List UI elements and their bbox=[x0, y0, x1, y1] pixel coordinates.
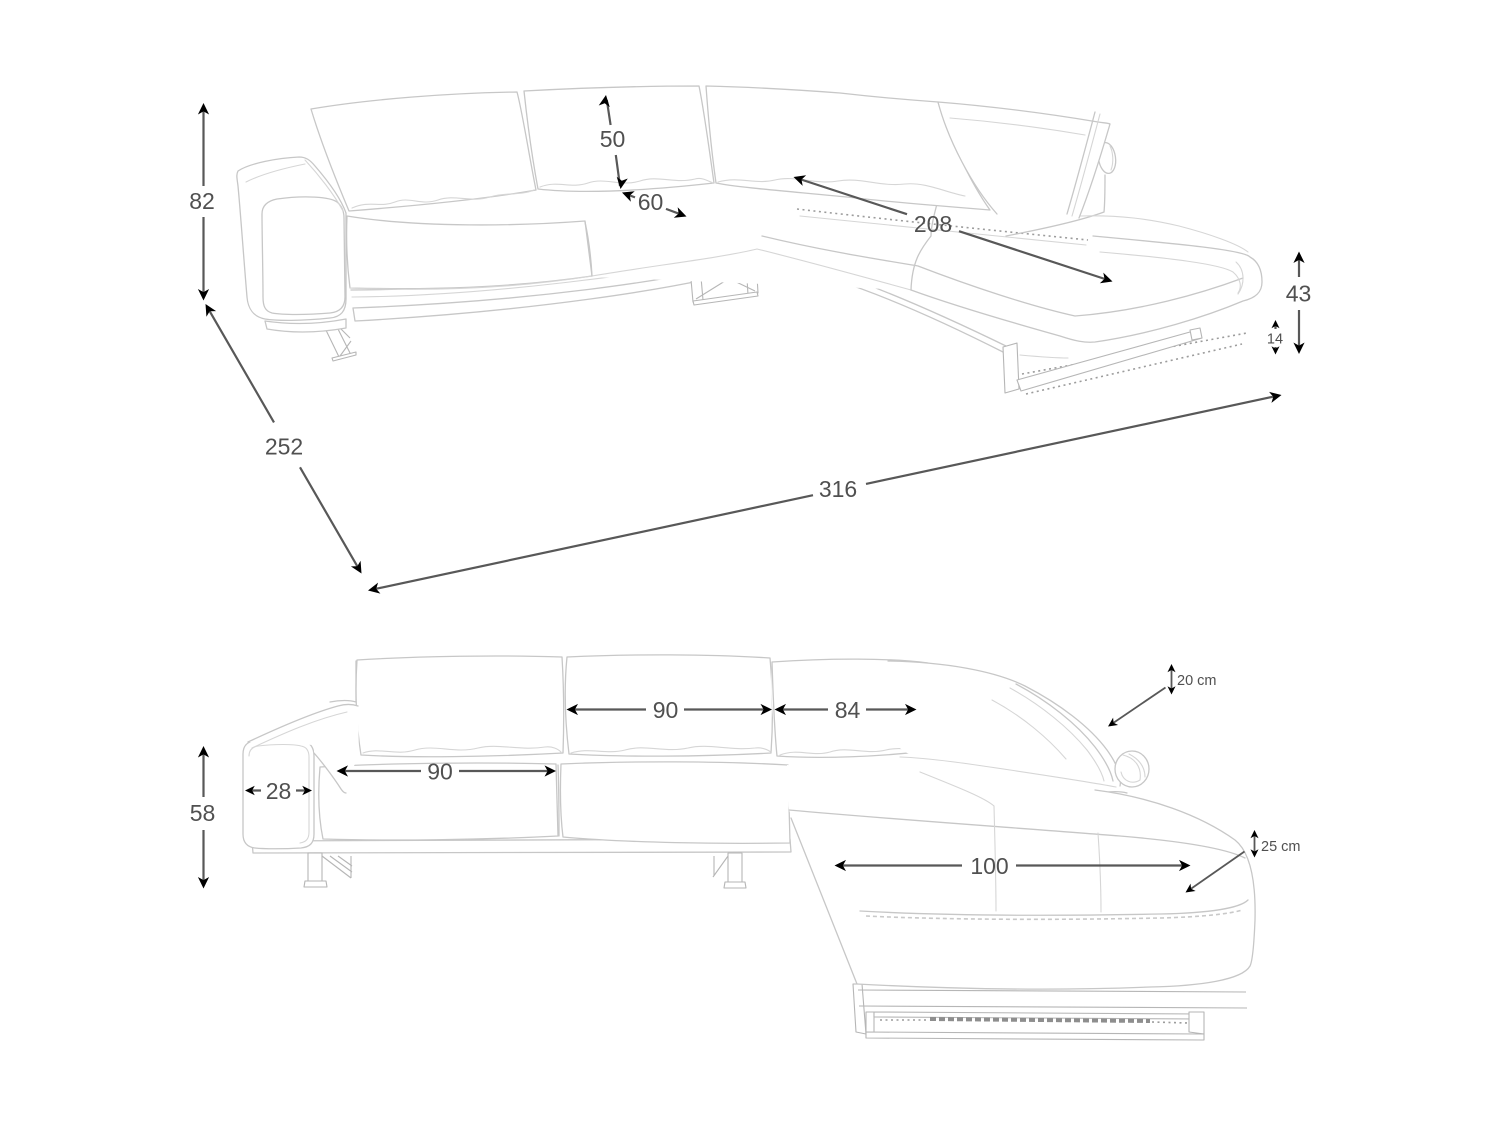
svg-text:28: 28 bbox=[266, 778, 292, 804]
svg-text:84: 84 bbox=[835, 697, 861, 723]
svg-text:60: 60 bbox=[638, 189, 664, 215]
svg-text:208: 208 bbox=[914, 211, 952, 237]
svg-text:82: 82 bbox=[189, 188, 215, 214]
svg-text:58: 58 bbox=[190, 800, 216, 826]
svg-text:25 cm: 25 cm bbox=[1261, 839, 1301, 855]
svg-text:43: 43 bbox=[1286, 281, 1312, 307]
svg-text:50: 50 bbox=[600, 126, 626, 152]
svg-text:90: 90 bbox=[653, 697, 679, 723]
svg-text:14: 14 bbox=[1267, 332, 1283, 348]
svg-text:90: 90 bbox=[427, 759, 453, 785]
svg-text:20 cm: 20 cm bbox=[1177, 673, 1217, 689]
svg-text:252: 252 bbox=[265, 434, 303, 460]
svg-text:100: 100 bbox=[970, 853, 1008, 879]
svg-text:316: 316 bbox=[819, 476, 857, 502]
